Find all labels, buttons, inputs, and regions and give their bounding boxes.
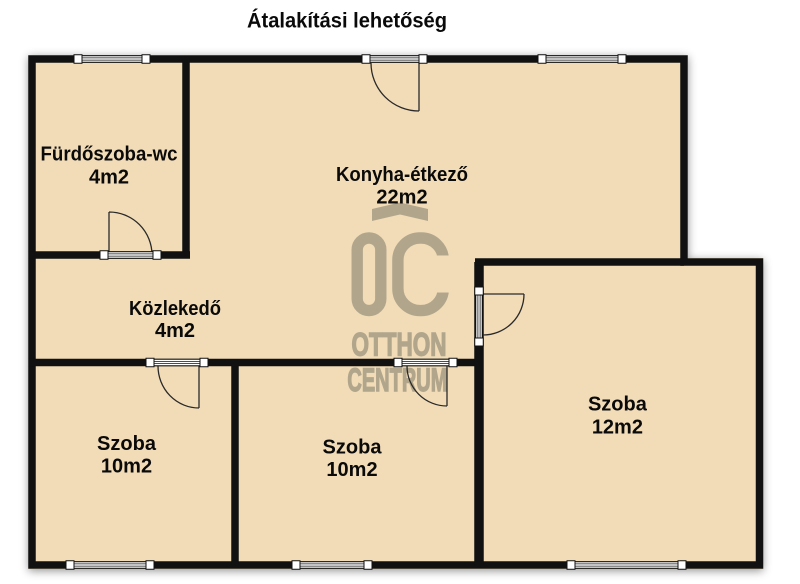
svg-text:Közlekedő: Közlekedő [129, 298, 221, 320]
svg-text:Szoba: Szoba [323, 437, 383, 459]
svg-text:Fürdőszoba-wc: Fürdőszoba-wc [41, 144, 178, 166]
svg-text:Szoba: Szoba [588, 394, 648, 416]
svg-text:4m2: 4m2 [155, 320, 195, 342]
svg-text:10m2: 10m2 [101, 456, 152, 478]
svg-text:12m2: 12m2 [592, 417, 643, 439]
svg-text:OTTHON: OTTHON [352, 327, 447, 363]
svg-text:Konyha-étkező: Konyha-étkező [336, 164, 468, 186]
svg-text:Átalakítási lehetőség: Átalakítási lehetőség [247, 10, 447, 33]
svg-text:CENTRUM: CENTRUM [347, 362, 447, 398]
svg-text:10m2: 10m2 [326, 459, 377, 481]
svg-text:22m2: 22m2 [376, 187, 427, 209]
svg-text:Szoba: Szoba [97, 433, 157, 455]
svg-text:4m2: 4m2 [89, 167, 129, 189]
